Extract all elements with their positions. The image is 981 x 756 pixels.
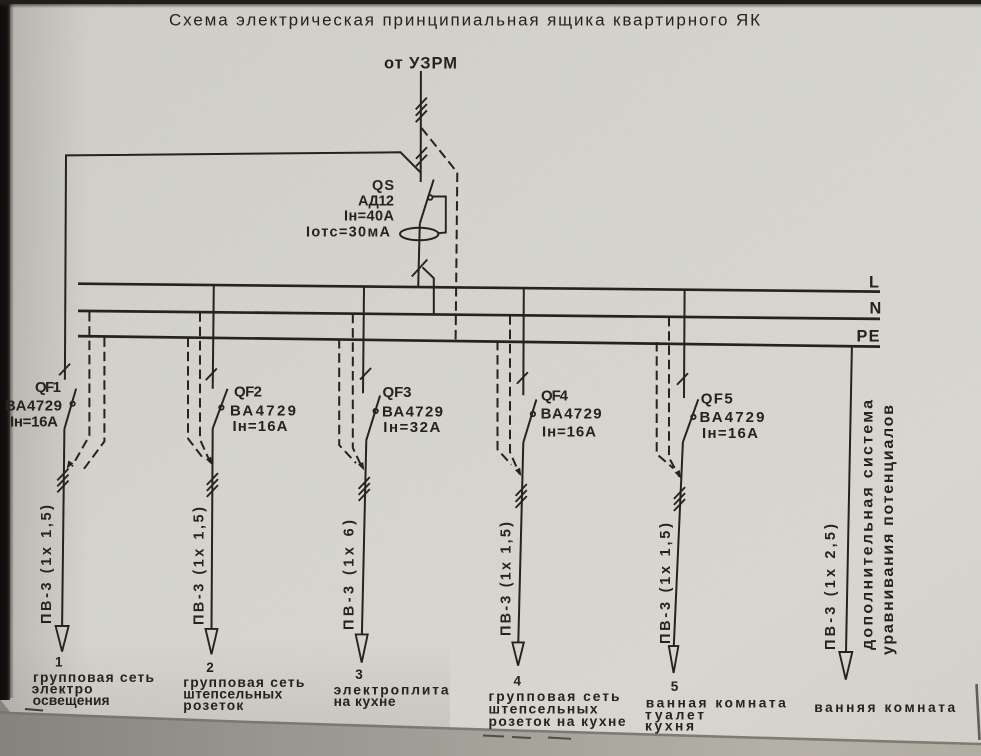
svg-text:АД12: АД12 <box>358 194 394 210</box>
svg-text:N: N <box>870 300 882 318</box>
svg-text:QS: QS <box>372 178 394 194</box>
svg-text:ВА4729: ВА4729 <box>5 398 62 415</box>
svg-text:ВА4729: ВА4729 <box>382 404 443 421</box>
svg-text:5: 5 <box>671 679 679 694</box>
svg-text:ВА4729: ВА4729 <box>700 409 765 426</box>
svg-text:ванняя комната: ванняя комната <box>814 700 955 715</box>
svg-text:розеток на кухне: розеток на кухне <box>489 714 626 729</box>
svg-text:розеток: розеток <box>183 698 243 713</box>
svg-text:QF2: QF2 <box>234 384 262 401</box>
svg-text:кухня: кухня <box>645 719 694 734</box>
svg-text:QF1: QF1 <box>35 379 61 396</box>
svg-text:QF3: QF3 <box>383 384 412 401</box>
svg-text:2: 2 <box>206 660 214 675</box>
svg-text:PE: PE <box>857 328 880 346</box>
svg-text:от УЗРМ: от УЗРМ <box>384 55 457 73</box>
svg-text:1: 1 <box>55 655 63 670</box>
svg-text:ВА4729: ВА4729 <box>541 406 602 423</box>
svg-text:L: L <box>869 274 879 292</box>
svg-text:Iн=16А: Iн=16А <box>10 414 58 431</box>
svg-text:Iн=32А: Iн=32А <box>383 419 440 436</box>
svg-text:ПВ-3 (1х 6): ПВ-3 (1х 6) <box>342 520 358 630</box>
svg-text:ВА4729: ВА4729 <box>230 403 296 420</box>
svg-text:Схема электрическая принципиал: Схема электрическая принципиальная ящика… <box>169 11 760 30</box>
svg-text:Iн=16А: Iн=16А <box>542 424 596 441</box>
svg-text:QF5: QF5 <box>701 391 733 408</box>
svg-text:Iн=16А: Iн=16А <box>702 425 758 442</box>
svg-text:QF4: QF4 <box>541 388 569 405</box>
svg-text:уравнивания потенциалов: уравнивания потенциалов <box>880 405 897 655</box>
svg-text:ПВ-3 (1х 1,5): ПВ-3 (1х 1,5) <box>499 522 515 636</box>
svg-text:ПВ-3 (1х 1,5): ПВ-3 (1х 1,5) <box>658 523 674 644</box>
svg-text:на кухне: на кухне <box>334 694 396 709</box>
svg-text:Iотс=30мА: Iотс=30мА <box>306 225 391 241</box>
svg-text:4: 4 <box>513 673 521 688</box>
svg-text:дополнительная система: дополнительная система <box>860 400 877 650</box>
svg-text:Iн=16А: Iн=16А <box>233 418 288 435</box>
svg-text:освещения: освещения <box>33 693 110 708</box>
svg-text:ПВ-3 (1х 1,5): ПВ-3 (1х 1,5) <box>39 505 55 624</box>
svg-text:Iн=40А: Iн=40А <box>344 209 395 225</box>
svg-text:3: 3 <box>355 667 363 682</box>
svg-text:ПВ-3 (1х 1,5): ПВ-3 (1х 1,5) <box>192 507 208 625</box>
svg-text:ПВ-3 (1х 2,5): ПВ-3 (1х 2,5) <box>823 524 839 650</box>
